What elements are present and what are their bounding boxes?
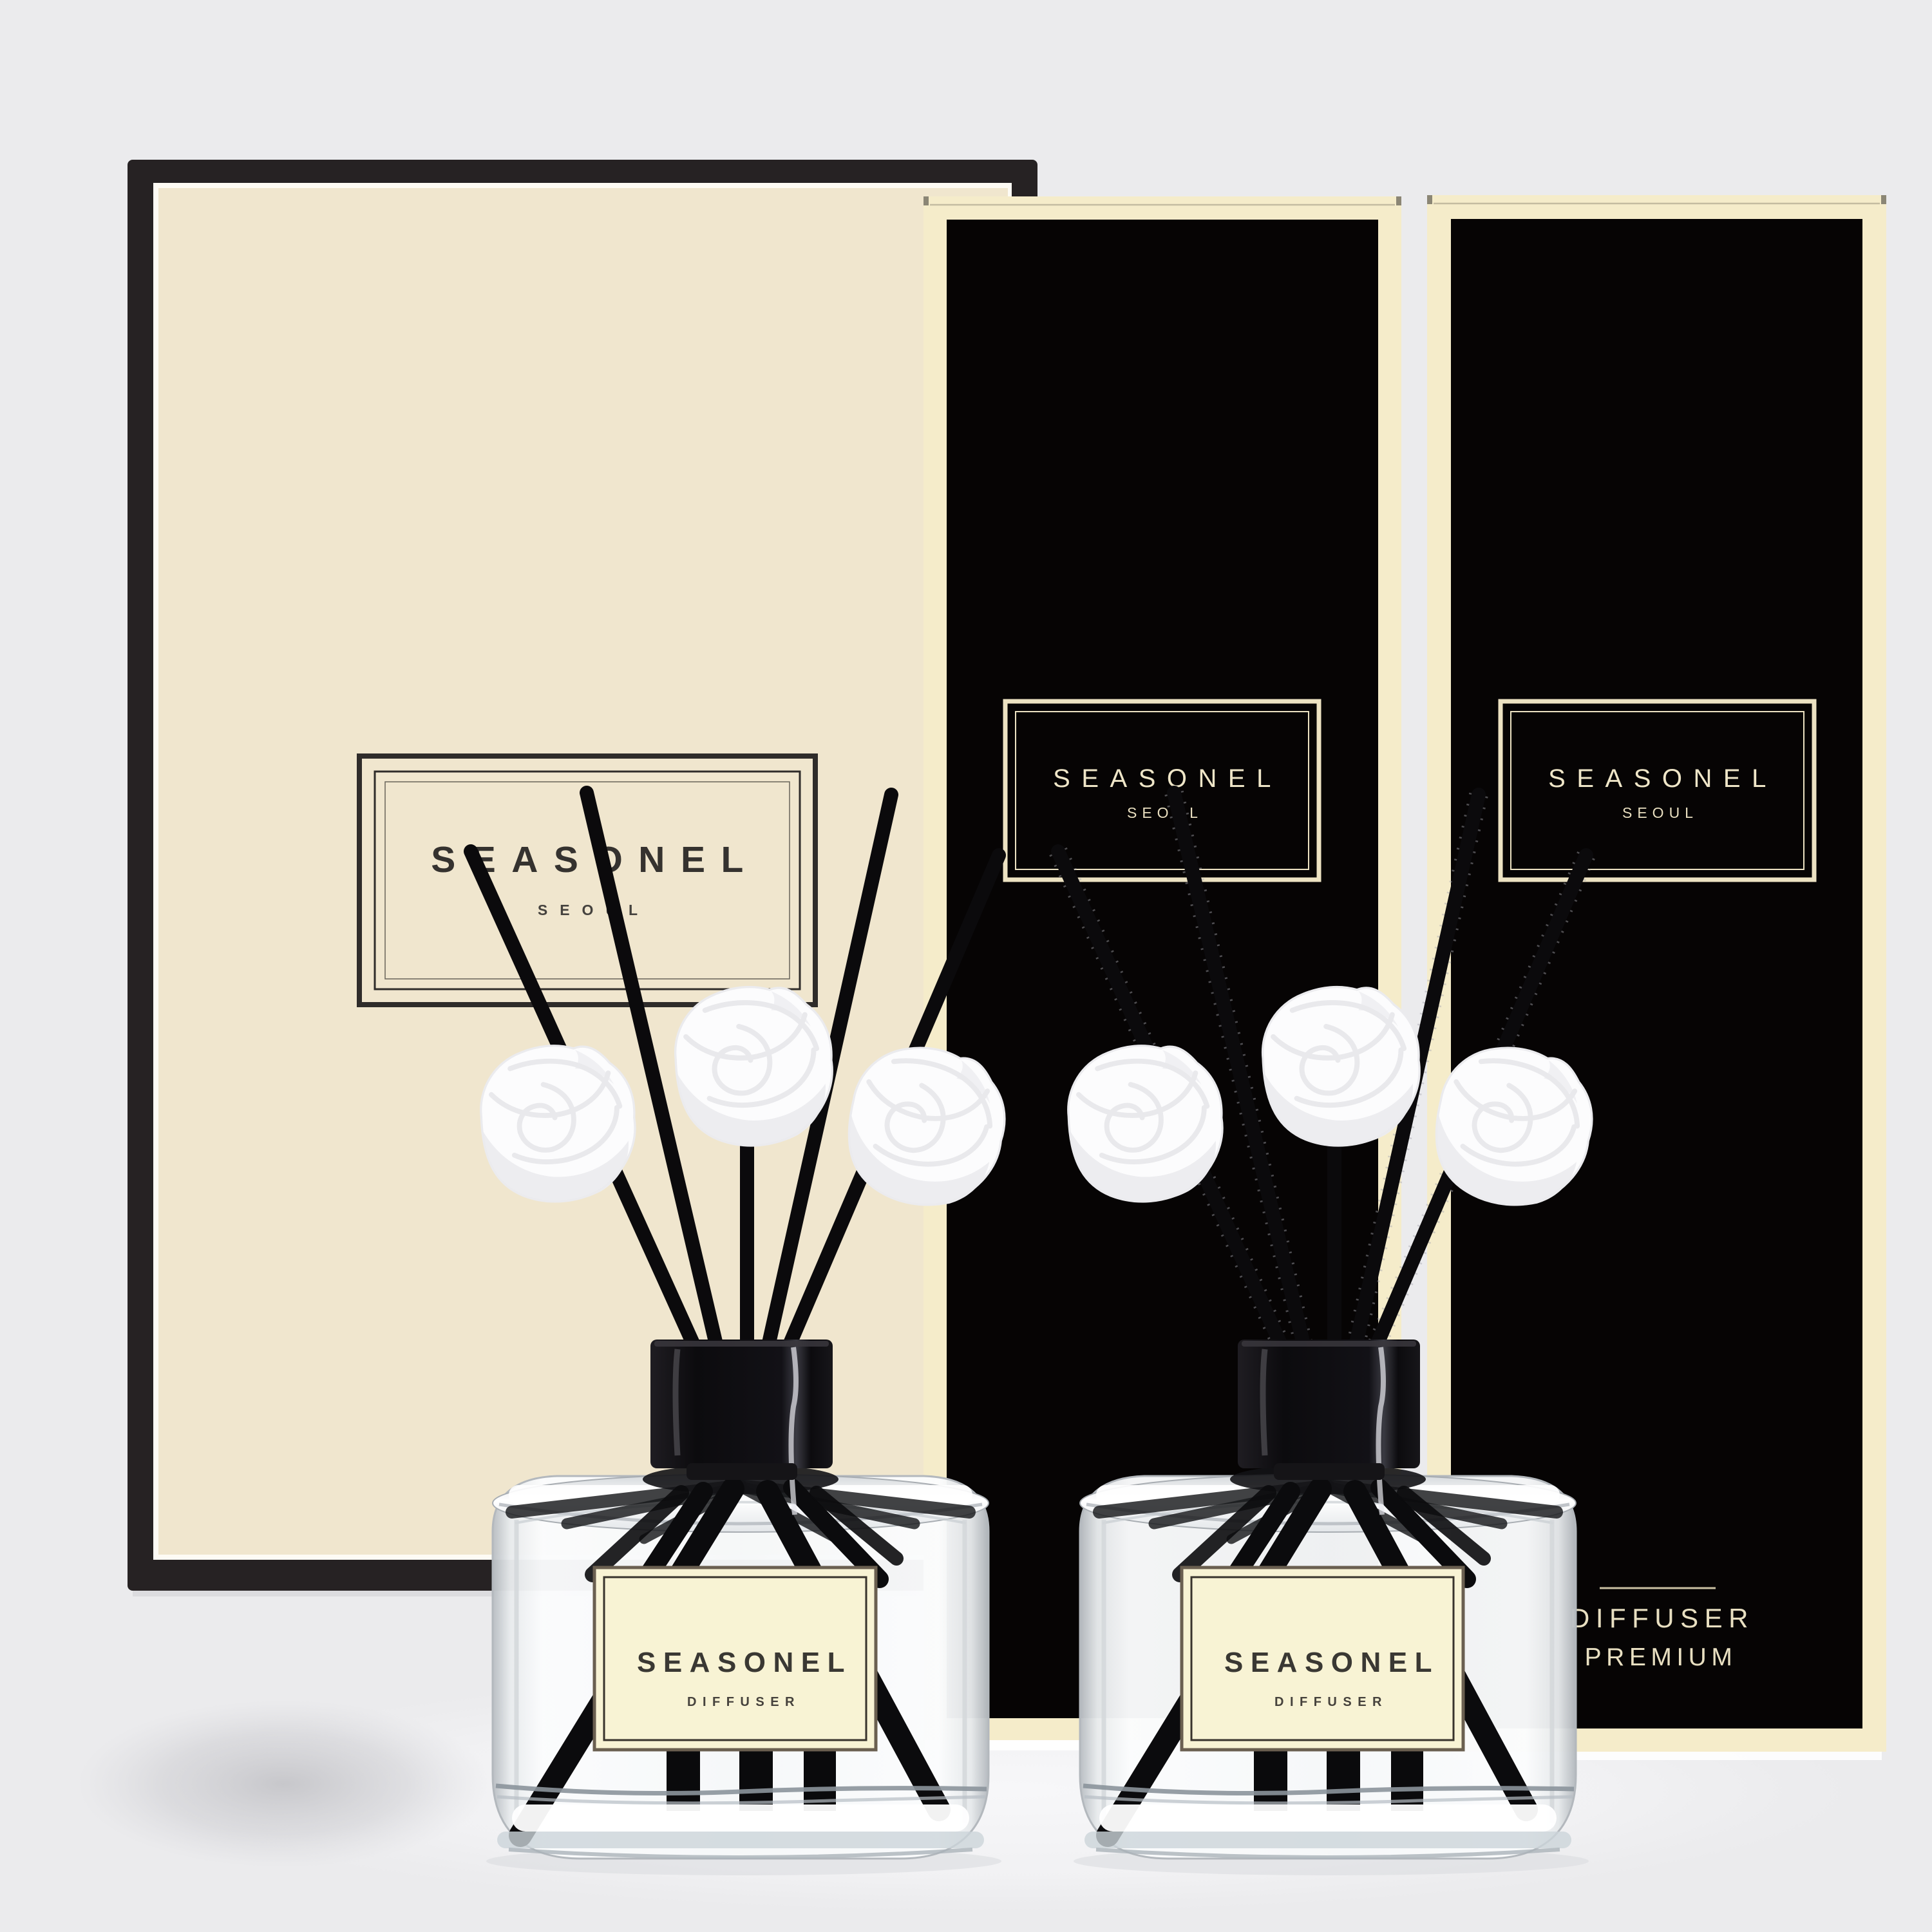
svg-text:SEOUL: SEOUL [1127,804,1203,821]
svg-text:PREMIUM: PREMIUM [1585,1643,1738,1671]
svg-text:DIFFUSER: DIFFUSER [1570,1603,1754,1633]
svg-text:SEOUL: SEOUL [1622,804,1698,821]
svg-text:SEASONEL: SEASONEL [1053,764,1282,793]
svg-text:SEASONEL: SEASONEL [1548,764,1777,793]
svg-text:SEOUL: SEOUL [538,902,650,918]
